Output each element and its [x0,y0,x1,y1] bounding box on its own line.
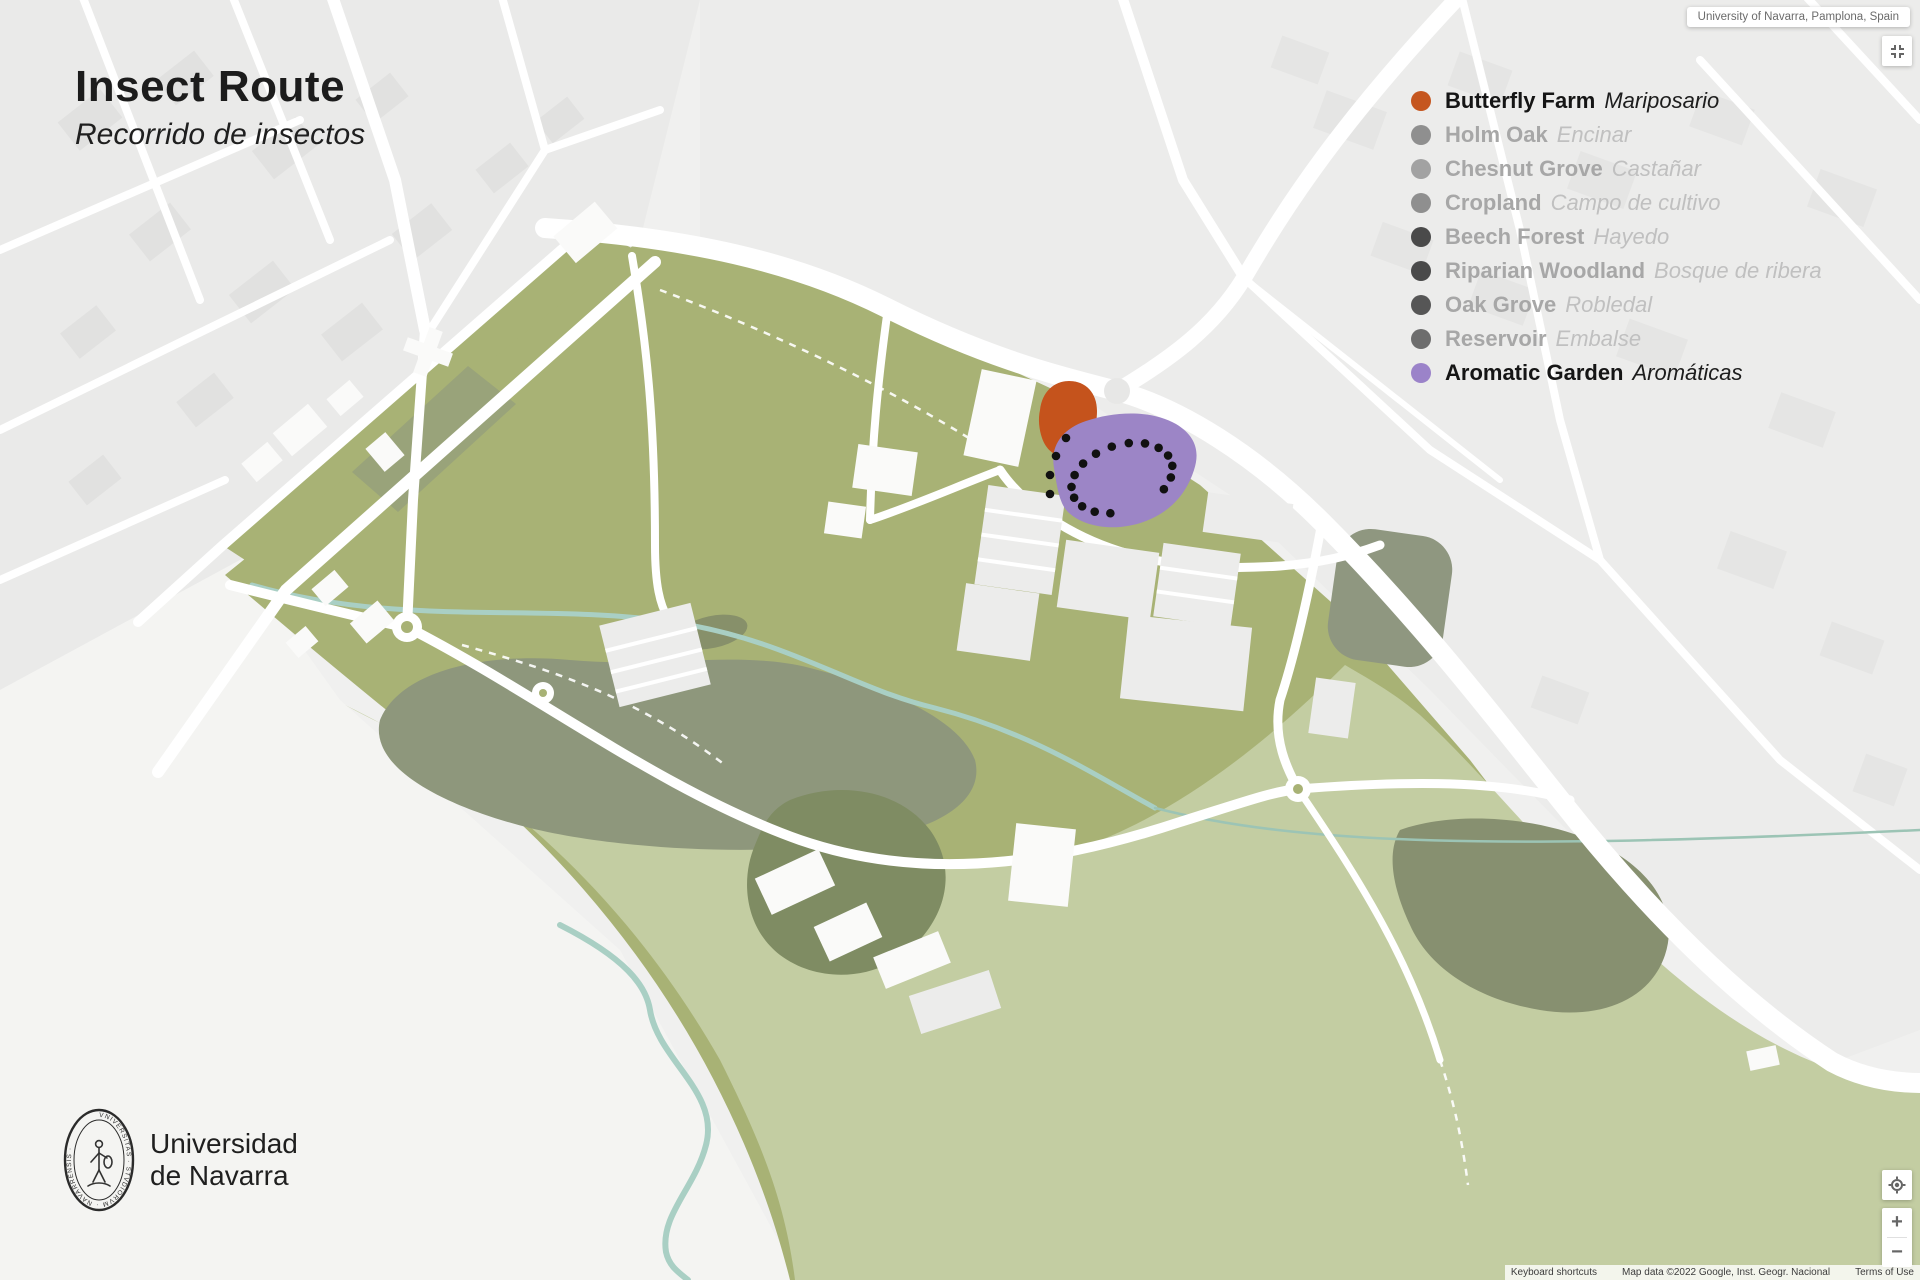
legend-label: Butterfly Farm [1445,88,1595,114]
my-location-icon [1888,1176,1906,1194]
attribution-bar: Keyboard shortcuts Map data ©2022 Google… [1505,1265,1920,1280]
legend-label: Holm Oak [1445,122,1548,148]
legend-dot-icon [1411,363,1431,383]
legend-label: Beech Forest [1445,224,1584,250]
legend-label: Chesnut Grove [1445,156,1603,182]
legend-label: Oak Grove [1445,292,1556,318]
legend-dot-icon [1411,329,1431,349]
university-logo: VNIVERSITAS · STVDIORVM · NAVARRENSIS · … [62,1108,298,1212]
page-subtitle: Recorrido de insectos [75,118,365,152]
keyboard-shortcuts-link[interactable]: Keyboard shortcuts [1505,1265,1603,1280]
fullscreen-button[interactable] [1882,36,1912,66]
my-location-button[interactable] [1882,1170,1912,1200]
map-data-credit: Map data ©2022 Google, Inst. Geogr. Naci… [1616,1265,1836,1280]
legend-item-holm-oak: Holm OakEncinar [1411,118,1822,152]
legend-item-beech-forest: Beech ForestHayedo [1411,220,1822,254]
legend-dot-icon [1411,159,1431,179]
legend-item-chesnut-grove: Chesnut GroveCastañar [1411,152,1822,186]
map-title-block: Insect Route Recorrido de insectos [75,62,365,152]
zoom-in-button[interactable]: + [1882,1208,1912,1237]
legend-item-butterfly-farm: Butterfly FarmMariposario [1411,84,1822,118]
legend-item-oak-grove: Oak GroveRobledal [1411,288,1822,322]
fullscreen-icon [1890,44,1905,59]
legend-label: Aromatic Garden [1445,360,1624,386]
place-chip[interactable]: University of Navarra, Pamplona, Spain [1687,7,1910,27]
legend-native-label: Mariposario [1604,88,1719,114]
map-page: Insect Route Recorrido de insectos Butte… [0,0,1920,1280]
legend-dot-icon [1411,261,1431,281]
legend-label: Reservoir [1445,326,1547,352]
legend-item-reservoir: ReservoirEmbalse [1411,322,1822,356]
legend-native-label: Aromáticas [1633,360,1743,386]
legend-item-aromatic-garden: Aromatic GardenAromáticas [1411,356,1822,390]
legend-dot-icon [1411,193,1431,213]
legend-item-riparian-woodland: Riparian WoodlandBosque de ribera [1411,254,1822,288]
university-logo-text: Universidad de Navarra [150,1128,298,1192]
legend-item-cropland: CroplandCampo de cultivo [1411,186,1822,220]
legend-native-label: Robledal [1565,292,1652,318]
page-title: Insect Route [75,62,365,112]
legend-native-label: Encinar [1557,122,1632,148]
legend-native-label: Castañar [1612,156,1701,182]
zoom-control: + − [1882,1208,1912,1267]
legend-dot-icon [1411,125,1431,145]
legend-native-label: Campo de cultivo [1551,190,1721,216]
legend: Butterfly FarmMariposarioHolm OakEncinar… [1411,84,1822,390]
legend-native-label: Embalse [1556,326,1642,352]
legend-dot-icon [1411,295,1431,315]
terms-of-use-link[interactable]: Terms of Use [1849,1265,1920,1280]
legend-native-label: Bosque de ribera [1654,258,1822,284]
legend-dot-icon [1411,91,1431,111]
zoom-out-button[interactable]: − [1882,1238,1912,1267]
legend-label: Cropland [1445,190,1542,216]
legend-dot-icon [1411,227,1431,247]
legend-native-label: Hayedo [1593,224,1669,250]
university-seal-icon: VNIVERSITAS · STVDIORVM · NAVARRENSIS · [62,1108,136,1212]
legend-label: Riparian Woodland [1445,258,1645,284]
